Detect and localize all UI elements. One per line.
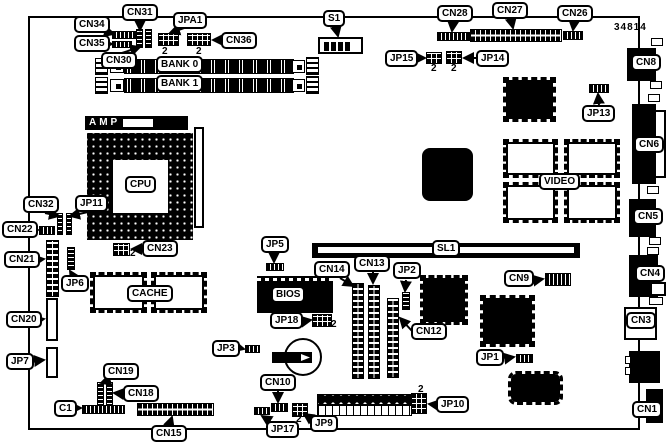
pin2-marker: 2 [331, 319, 337, 330]
label-jp11: JP11 [75, 195, 108, 212]
label-bios: BIOS [271, 286, 305, 303]
label-jp1: JP1 [476, 349, 504, 366]
label-jp15: JP15 [385, 50, 418, 67]
label-cn10: CN10 [260, 374, 296, 391]
label-cn21: CN21 [4, 251, 40, 268]
label-cn31: CN31 [122, 4, 158, 21]
label-jp9: JP9 [310, 415, 338, 432]
label-jpa1: JPA1 [173, 12, 207, 29]
pin2-marker: 2 [431, 63, 437, 74]
label-c1: C1 [54, 400, 77, 417]
label-bank0: BANK 0 [156, 56, 203, 73]
label-bank1: BANK 1 [156, 75, 203, 92]
pin2-marker: 2 [162, 46, 168, 57]
label-cn3: CN3 [626, 312, 656, 329]
label-cn9: CN9 [504, 270, 534, 287]
pin2-marker: 2 [296, 414, 302, 425]
label-jp7: JP7 [6, 353, 34, 370]
label-jp17: JP17 [266, 421, 299, 438]
label-cn1: CN1 [632, 401, 662, 418]
pin2-marker: 2 [451, 63, 457, 74]
figure-number: 34814 [614, 22, 647, 33]
label-cn18: CN18 [123, 385, 159, 402]
label-cn4: CN4 [635, 265, 665, 282]
label-cache: CACHE [127, 285, 173, 302]
label-cn8: CN8 [631, 54, 661, 71]
label-cn34: CN34 [74, 16, 110, 33]
label-jp3: JP3 [212, 340, 240, 357]
label-cn35: CN35 [74, 35, 110, 52]
label-jp5: JP5 [261, 236, 289, 253]
label-jp6: JP6 [61, 275, 89, 292]
label-cn6: CN6 [634, 136, 664, 153]
pin2-marker: 2 [418, 384, 424, 395]
label-sl1: SL1 [432, 240, 460, 257]
label-cn30: CN30 [101, 52, 137, 69]
pin2-marker: 2 [130, 248, 136, 259]
label-jp2: JP2 [393, 262, 421, 279]
label-cn14: CN14 [314, 261, 350, 278]
label-jp18: JP18 [270, 312, 303, 329]
label-s1: S1 [323, 10, 345, 27]
label-cn5: CN5 [633, 208, 663, 225]
label-jp14: JP14 [476, 50, 509, 67]
label-cpu: CPU [125, 176, 156, 193]
label-cn13: CN13 [354, 255, 390, 272]
leader-lines [0, 0, 672, 445]
pin2-marker: 2 [196, 46, 202, 57]
label-jp13: JP13 [582, 105, 615, 122]
label-cn26: CN26 [557, 5, 593, 22]
label-cn36: CN36 [221, 32, 257, 49]
label-cn20: CN20 [6, 311, 42, 328]
label-cn32: CN32 [23, 196, 59, 213]
label-cn28: CN28 [437, 5, 473, 22]
label-jp10: JP10 [436, 396, 469, 413]
label-video: VIDEO [539, 173, 580, 190]
label-cn12: CN12 [411, 323, 447, 340]
label-cn27: CN27 [492, 2, 528, 19]
label-cn23: CN23 [142, 240, 178, 257]
label-cn19: CN19 [103, 363, 139, 380]
label-cn15: CN15 [151, 425, 187, 442]
motherboard-diagram: AMP [0, 0, 672, 445]
label-cn22: CN22 [2, 221, 38, 238]
